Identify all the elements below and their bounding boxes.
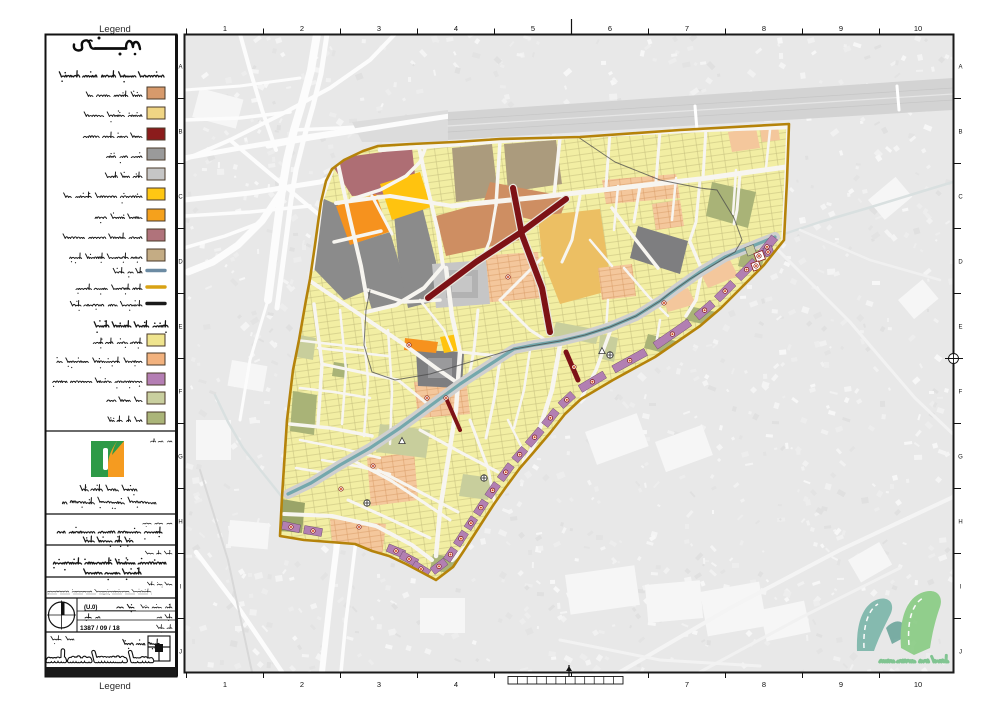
svg-text:J: J bbox=[959, 650, 962, 656]
svg-text:8: 8 bbox=[762, 24, 766, 33]
svg-text:10: 10 bbox=[914, 680, 922, 689]
svg-text:C: C bbox=[958, 195, 963, 201]
svg-text:3: 3 bbox=[377, 24, 381, 33]
svg-text:9: 9 bbox=[839, 24, 843, 33]
svg-text:1: 1 bbox=[223, 24, 227, 33]
svg-text:D: D bbox=[178, 260, 183, 266]
svg-text:2: 2 bbox=[300, 24, 304, 33]
svg-text:G: G bbox=[958, 455, 963, 461]
svg-text:8: 8 bbox=[762, 680, 766, 689]
svg-text:(U.0): (U.0) bbox=[84, 605, 97, 611]
svg-text:7: 7 bbox=[685, 680, 689, 689]
svg-text:Legend: Legend bbox=[99, 681, 131, 692]
svg-text:1: 1 bbox=[223, 680, 227, 689]
svg-text:D: D bbox=[958, 260, 963, 266]
svg-text:A: A bbox=[178, 65, 182, 71]
svg-text:B: B bbox=[958, 130, 962, 136]
svg-text:5: 5 bbox=[531, 24, 535, 33]
svg-text:J: J bbox=[179, 650, 182, 656]
svg-text:4: 4 bbox=[454, 24, 458, 33]
svg-text:E: E bbox=[958, 325, 962, 331]
svg-text:B: B bbox=[178, 130, 182, 136]
svg-text:F: F bbox=[959, 390, 963, 396]
svg-text:2: 2 bbox=[300, 680, 304, 689]
svg-text:3: 3 bbox=[377, 680, 381, 689]
svg-text:C: C bbox=[178, 195, 183, 201]
svg-text:Legend: Legend bbox=[99, 24, 131, 35]
svg-text:F: F bbox=[179, 390, 183, 396]
svg-text:G: G bbox=[178, 455, 183, 461]
svg-text:H: H bbox=[958, 520, 962, 526]
svg-text:6: 6 bbox=[608, 24, 612, 33]
svg-text:A: A bbox=[958, 65, 962, 71]
svg-text:1387 / 09 / 18: 1387 / 09 / 18 bbox=[80, 625, 120, 632]
svg-text:10: 10 bbox=[914, 24, 922, 33]
svg-text:E: E bbox=[178, 325, 182, 331]
svg-text:H: H bbox=[178, 520, 182, 526]
svg-text:4: 4 bbox=[454, 680, 458, 689]
svg-text:7: 7 bbox=[685, 24, 689, 33]
svg-text:9: 9 bbox=[839, 680, 843, 689]
